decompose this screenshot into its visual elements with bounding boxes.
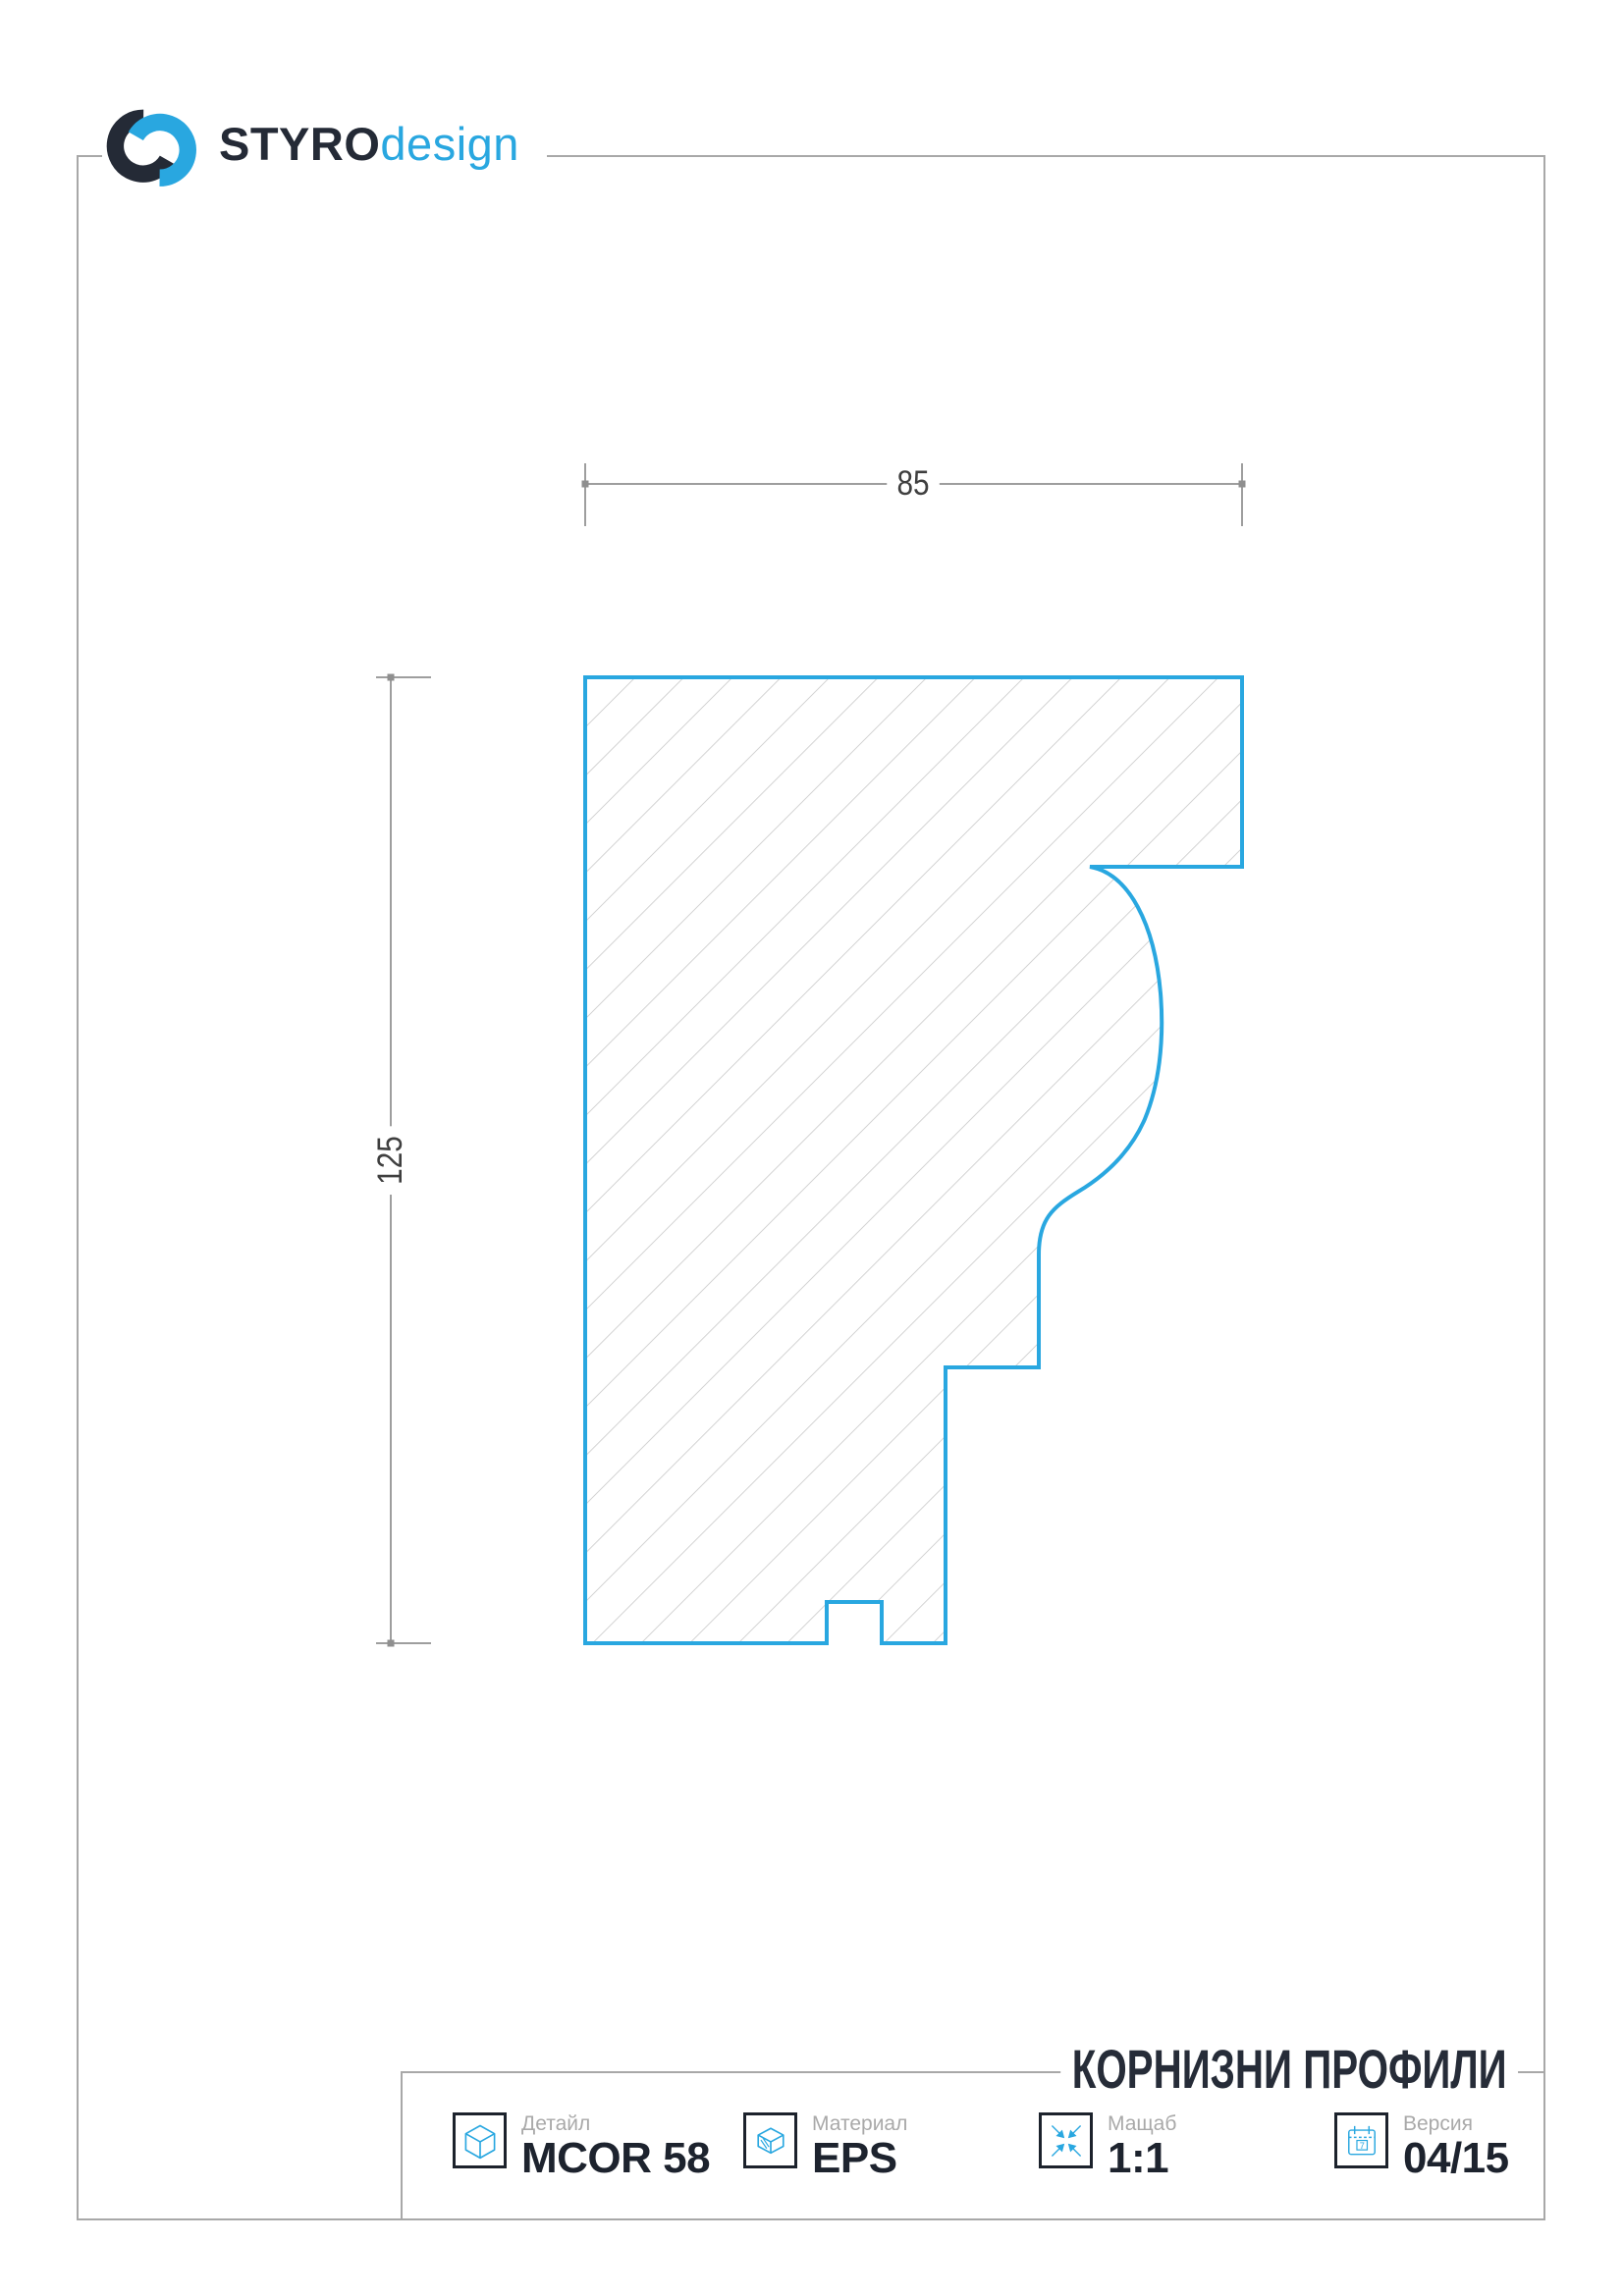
logo-text: STYROdesign	[219, 117, 519, 171]
material-icon	[743, 2112, 797, 2168]
footer-item-label: Материал	[812, 2112, 907, 2135]
cube-icon	[453, 2112, 507, 2168]
footer-item-value: 1:1	[1108, 2137, 1176, 2180]
profile-drawing	[0, 0, 1623, 2296]
footer-item-detail: Детайл MCOR 58	[453, 2112, 710, 2180]
footer-item-label: Версия	[1403, 2112, 1509, 2135]
scale-icon	[1039, 2112, 1093, 2168]
footer-item-label: Мащаб	[1108, 2112, 1176, 2135]
brand-name-bold: STYRO	[219, 118, 380, 170]
height-dimension-label: 125	[371, 1126, 410, 1195]
sheet-title: КОРНИЗНИ ПРОФИЛИ	[1060, 2037, 1518, 2101]
logo: STYROdesign	[102, 94, 547, 192]
footer-item-value: MCOR 58	[521, 2137, 710, 2180]
footer-item-value: EPS	[812, 2137, 907, 2180]
styrodesign-logo-icon	[102, 98, 197, 188]
footer-item-value: 04/15	[1403, 2137, 1509, 2180]
profile-shape	[585, 677, 1242, 1643]
footer-item-label: Детайл	[521, 2112, 710, 2135]
footer-item-version: 7 Версия 04/15	[1334, 2112, 1509, 2180]
width-dimension-label: 85	[887, 464, 939, 504]
footer-item-material: Материал EPS	[743, 2112, 907, 2180]
footer-item-scale: Мащаб 1:1	[1039, 2112, 1176, 2180]
calendar-icon: 7	[1334, 2112, 1388, 2168]
calendar-digit: 7	[1359, 2140, 1364, 2150]
drawing-sheet: STYROdesign 85 125 КОРНИЗНИ ПРОФИЛИ	[0, 0, 1623, 2296]
brand-name-light: design	[380, 118, 519, 170]
